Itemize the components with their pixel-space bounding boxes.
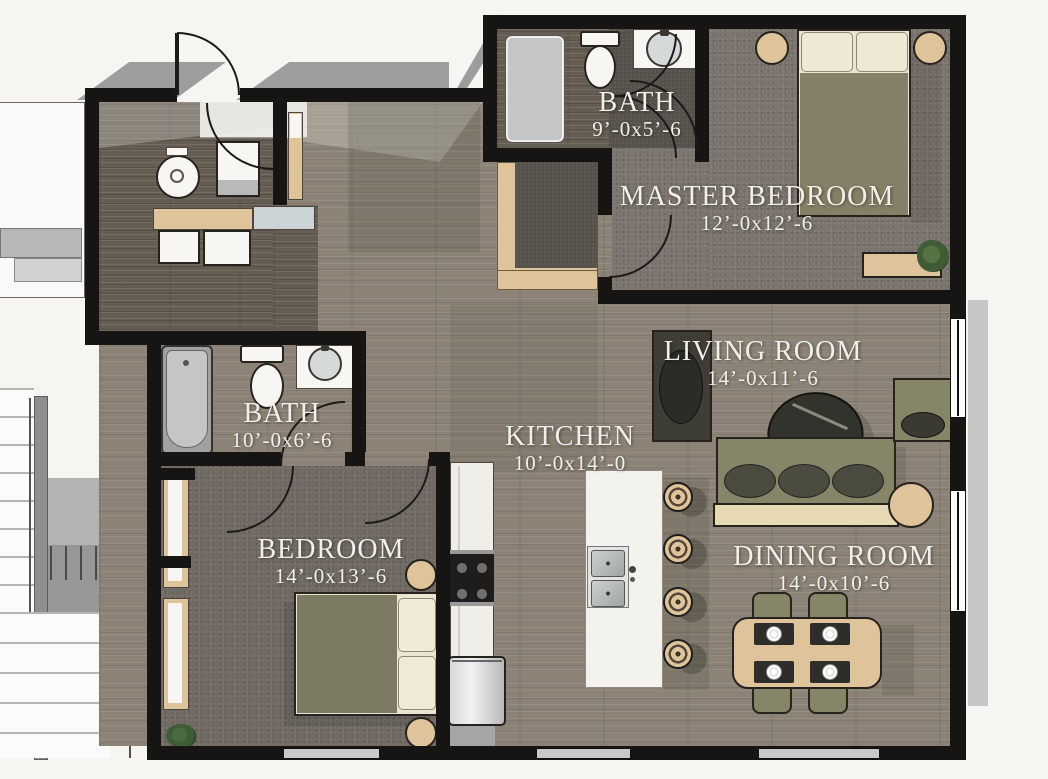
sink-faucet [630,577,635,582]
window [758,748,880,759]
bath-sink [646,31,682,67]
wall [352,331,366,452]
wall [695,15,709,162]
wall [147,452,281,466]
toilet-bowl [584,45,616,89]
plate [822,664,838,680]
wall [483,15,497,162]
balcony-right [966,300,988,706]
table-shadow [882,625,914,695]
kitchen-corner-tile [449,723,495,746]
bar-stool [663,587,693,617]
toilet-bowl [250,363,284,409]
closet-shelf-inner [168,603,182,703]
plate [766,626,782,642]
sofa-cushion [778,464,830,498]
wall [85,331,352,345]
sofa-cushion [832,464,884,498]
toilet-tank [240,345,284,363]
bar-stool [663,482,693,512]
bed-shadow [911,55,941,223]
utility-sink-counter [253,206,315,230]
sofa-cushion [724,464,776,498]
bed-pillow [398,656,436,710]
floor-plan-canvas: BATH 9’-0x5’-6 MASTER BEDROOM 12’-0x12’-… [0,0,1048,779]
laundry-counter [153,208,253,230]
water-heater-vent [166,147,188,156]
hall-shadow [348,102,480,252]
master-bed-blanket [800,73,908,215]
plant [917,240,949,272]
sink-basin [591,580,625,607]
bath-faucet [660,29,669,36]
wall [273,102,287,205]
sink-faucet [629,566,636,573]
refrigerator [448,656,506,726]
master-pillow [801,32,853,72]
nightstand [405,559,437,591]
wall-stub [161,468,195,480]
armchair-seat [901,412,945,438]
plant [166,724,196,748]
walkin-closet-shelf [497,270,598,290]
wall [598,290,952,304]
balcony-ledge [0,228,82,258]
wall [345,452,365,466]
wall [483,15,950,29]
window [536,748,631,759]
hall-closet-shelf-top [290,114,301,138]
wall-stub [161,556,191,568]
kitchen-shadow [450,304,598,472]
side-table [888,482,934,528]
stove [450,550,494,606]
window [283,748,380,759]
bath-sink [308,347,342,381]
bar-stool [663,534,693,564]
laundry-appliance [203,230,251,266]
bathtub-drain [183,360,189,366]
water-heater-ring [170,169,184,183]
stairs-lower-flight [0,612,110,758]
shower [506,36,564,142]
balcony-ledge [14,258,82,282]
nightstand [913,31,947,65]
wall [598,162,612,215]
stairs-rail-left [29,398,31,612]
sofa-bench [713,503,899,527]
bed-blanket [297,595,397,713]
wall [147,345,161,760]
sink-basin [591,550,625,577]
floor-master-carpet [612,148,709,290]
wall [436,452,450,760]
wall [85,88,99,345]
walkin-closet-floor [515,162,598,268]
window-mullion [957,492,959,610]
plate [822,626,838,642]
laundry-appliance [158,230,200,264]
bed-pillow [398,598,436,652]
plate [766,664,782,680]
refrigerator-handle [452,660,502,662]
window-mullion [957,320,959,416]
master-pillow [856,32,908,72]
media-console-chair [659,350,703,424]
bar-stool [663,639,693,669]
bath-faucet [321,345,329,351]
nightstand [755,31,789,65]
washer-panel [218,180,258,195]
nightstand [405,717,437,749]
wall [483,148,612,162]
wall [240,88,483,102]
